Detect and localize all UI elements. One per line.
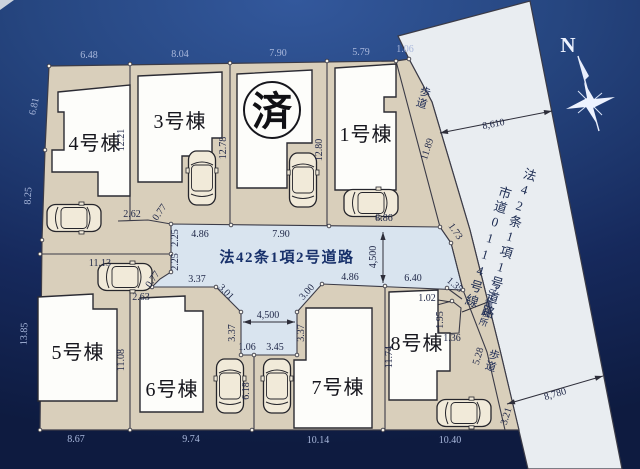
dim-bottom-lot7: 10.14 <box>307 435 330 446</box>
dim-lot7-north: 4.86 <box>341 272 359 283</box>
label-lot3: 3号棟 <box>154 110 207 133</box>
dim-stub-south-east: 3.45 <box>266 342 284 353</box>
dim-stub-west: 3.37 <box>227 324 238 342</box>
dim-lot5-lot6: 11.08 <box>116 349 127 371</box>
sold-mark: 済 <box>244 82 300 138</box>
dim-step-225a: 2.25 <box>170 229 181 247</box>
label-lot4: 4号棟 <box>69 132 122 155</box>
dim-left-middle: 8.25 <box>23 187 35 205</box>
dim-top-lot1: 5.79 <box>352 47 370 58</box>
dim-road-top-west: 4.86 <box>191 229 209 240</box>
scan-corner-artifact <box>0 0 14 10</box>
compass-star-icon <box>566 82 615 124</box>
dim-top-lot2: 7.90 <box>269 48 287 59</box>
dim-top-lot3: 8.04 <box>171 49 189 60</box>
car-lot7 <box>261 359 293 413</box>
label-lot8: 8号棟 <box>391 332 444 355</box>
dim-garbage-south: 1.36 <box>443 333 461 344</box>
site-plan-image: 済 4号棟 3号棟 1号棟 5号棟 6号棟 7号棟 8号棟 法42条1項2号道路… <box>0 0 640 469</box>
dim-step-263: 2.63 <box>132 292 150 303</box>
dim-lot2-lot1: 12.80 <box>314 139 325 162</box>
dim-lot3-lot2: 12.78 <box>218 137 229 160</box>
compass: N <box>560 33 615 131</box>
car-lot4 <box>47 202 101 234</box>
label-lot1: 1号棟 <box>340 123 393 146</box>
label-lot5: 5号棟 <box>52 341 105 364</box>
label-lot6: 6号棟 <box>146 378 199 401</box>
dim-left-lower: 13.85 <box>19 322 31 345</box>
sold-mark-text: 済 <box>252 89 293 134</box>
dim-lot1-south: 8.86 <box>375 213 393 224</box>
dim-lot6-north: 3.37 <box>188 274 206 285</box>
label-lot7: 7号棟 <box>312 376 365 399</box>
dim-lot7-lot8: 11.74 <box>384 346 395 368</box>
dim-road-east-width: 4,500 <box>368 246 379 269</box>
dim-bottom-lot5: 8.67 <box>67 434 85 445</box>
dim-left-upper: 6.81 <box>27 97 41 116</box>
dim-garbage-west: 1.95 <box>435 311 446 329</box>
dim-road-top-east: 7.90 <box>272 229 290 240</box>
dim-top-lot4: 6.48 <box>80 50 98 61</box>
dim-garbage-north: 1.02 <box>418 293 436 304</box>
dim-top-corner: 1.06 <box>396 44 414 55</box>
dim-bottom-lot8: 10.40 <box>439 435 462 446</box>
car-lot3 <box>186 151 218 205</box>
dim-stub-south-west: 1.06 <box>238 342 256 353</box>
dim-lot5-north: 11.13 <box>89 258 111 269</box>
label-middle-road: 法42条1項2号道路 <box>219 248 354 266</box>
dim-step-225b: 2.25 <box>170 253 181 271</box>
dim-stub-east: 3.37 <box>296 324 307 342</box>
car-lot8 <box>437 397 491 429</box>
dim-lot4-lot3: 12.21 <box>116 129 127 152</box>
dim-lot67-parking: 6.18 <box>241 382 252 400</box>
dim-lot8-north: 6.40 <box>404 273 422 284</box>
dim-step-262: 2.62 <box>123 209 141 220</box>
dim-stub-width: 4,500 <box>257 310 280 321</box>
compass-north-label: N <box>560 33 575 57</box>
dim-bottom-lot6: 9.74 <box>182 434 200 445</box>
